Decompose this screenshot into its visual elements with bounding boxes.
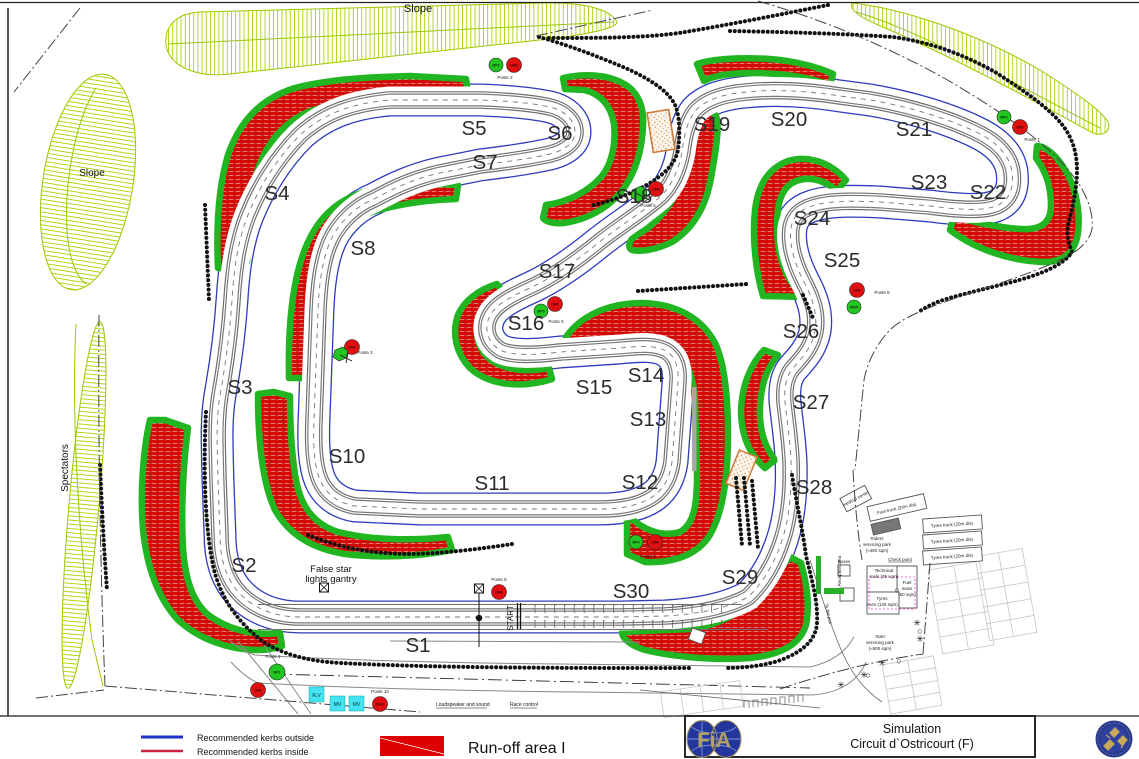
svg-text:Circuit d`Ostricourt (F): Circuit d`Ostricourt (F) [850,737,974,751]
svg-text:MPW: MPW [850,306,859,310]
svg-text:servicing park: servicing park [863,542,892,547]
svg-text:S7: S7 [472,151,497,174]
svg-text:S24: S24 [794,207,830,230]
svg-text:S11: S11 [475,472,510,495]
svg-text:Recommended kerbs inside: Recommended kerbs inside [197,747,309,757]
svg-text:Slope: Slope [79,168,105,179]
svg-text:S6: S6 [547,122,572,145]
svg-text:S17: S17 [539,260,575,283]
svg-text:S13: S13 [630,408,666,431]
svg-text:MP4: MP4 [633,541,640,545]
svg-text:Poste 5: Poste 5 [548,319,564,324]
svg-text:MV: MV [334,702,342,708]
svg-text:S4: S4 [264,182,289,205]
svg-text:DM3: DM3 [348,346,355,350]
svg-text:S28: S28 [796,476,832,499]
svg-text:DM10: DM10 [375,703,384,707]
svg-text:Start: Start [875,634,885,639]
svg-text:S15: S15 [576,376,612,399]
svg-text:Slope: Slope [404,3,432,15]
svg-text:DM8: DM8 [495,591,502,595]
svg-text:✳: ✳ [878,658,886,668]
svg-text:MP1: MP1 [274,671,281,675]
svg-text:DM6: DM6 [652,188,659,192]
svg-text:MPV: MPV [1000,116,1008,120]
svg-text:S3: S3 [227,376,252,399]
svg-text:○: ○ [917,626,922,636]
svg-text:S5: S5 [461,117,486,140]
svg-text:Simulation: Simulation [883,722,941,736]
svg-text:S20: S20 [771,108,807,131]
svg-text:DM6: DM6 [853,289,860,293]
svg-text:tours (125 sqm): tours (125 sqm) [866,602,898,607]
svg-text:S29: S29 [722,566,758,589]
svg-text:lights gantry: lights gantry [305,574,356,585]
svg-text:MV: MV [353,702,361,708]
svg-text:Poste 2: Poste 2 [497,75,513,80]
svg-text:START: START [506,605,515,631]
svg-text:S1: S1 [405,634,430,657]
svg-text:Poste 3: Poste 3 [357,350,373,355]
svg-text:(≈900 sqm): (≈900 sqm) [869,646,892,651]
svg-text:Race control: Race control [510,702,538,708]
svg-text:MP2: MP2 [493,64,500,68]
svg-text:Fuel: Fuel [903,580,912,585]
svg-text:Loudspeaker and sound: Loudspeaker and sound [436,702,490,708]
svg-text:Tyres: Tyres [876,596,888,601]
svg-text:S22: S22 [970,181,1006,204]
svg-text:S30: S30 [613,580,649,603]
svg-text:S18: S18 [616,185,652,208]
svg-text:Poste 10: Poste 10 [371,689,389,694]
svg-text:Recommended kerbs outside: Recommended kerbs outside [197,733,314,743]
svg-text:Riders: Riders [870,536,884,541]
svg-text:Poste 7: Poste 7 [1024,137,1040,142]
svg-text:S14: S14 [628,364,664,387]
svg-text:Technical: Technical [875,568,894,573]
svg-text:mass: mass [902,586,914,591]
svg-text:Poste 4: Poste 4 [640,554,656,559]
svg-text:DM4: DM4 [651,541,658,545]
svg-text:Poste 6: Poste 6 [874,290,890,295]
svg-text:DM9: DM9 [254,689,261,693]
svg-text:S25: S25 [824,249,860,272]
svg-text:S21: S21 [896,118,932,141]
svg-text:S27: S27 [793,391,829,414]
svg-text:S26: S26 [783,320,819,343]
svg-text:[[[[[[[[[[[[[[[[[[[[: [[[[[[[[[[[[[[[[[[[[ [534,619,730,628]
svg-text:○: ○ [865,670,870,680]
svg-text:tools (25 sqm): tools (25 sqm) [870,574,899,579]
svg-text:FiA: FiA [697,729,731,752]
svg-text:Run-off area I: Run-off area I [468,740,566,757]
svg-text:Check point: Check point [888,557,913,562]
svg-text:servicing park: servicing park [866,640,895,645]
svg-text:[[[[[[[[[[[[[[[[[[[[: [[[[[[[[[[[[[[[[[[[[ [534,604,730,613]
svg-text:S16: S16 [508,312,544,335]
svg-text:DM5: DM5 [551,303,558,307]
svg-text:Poste 1: Poste 1 [265,654,281,659]
svg-text:S8: S8 [350,237,375,260]
svg-text:(50 sqm): (50 sqm) [898,592,916,597]
svg-text:R.V: R.V [312,693,321,699]
svg-text:S2: S2 [231,554,256,577]
svg-text:DM7: DM7 [1016,126,1023,130]
svg-text:Poste 8: Poste 8 [491,577,507,582]
svg-text:Spectators: Spectators [60,444,71,492]
svg-text:(≈460 sqm): (≈460 sqm) [866,548,889,553]
svg-text:S10: S10 [329,445,365,468]
svg-text:S19: S19 [694,113,730,136]
svg-text:DM2: DM2 [510,64,517,68]
svg-text:✳: ✳ [837,680,845,690]
svg-text:○: ○ [894,585,899,595]
svg-text:Reception area: Reception area [837,555,842,586]
svg-text:S12: S12 [622,471,658,494]
svg-text:S23: S23 [911,171,947,194]
